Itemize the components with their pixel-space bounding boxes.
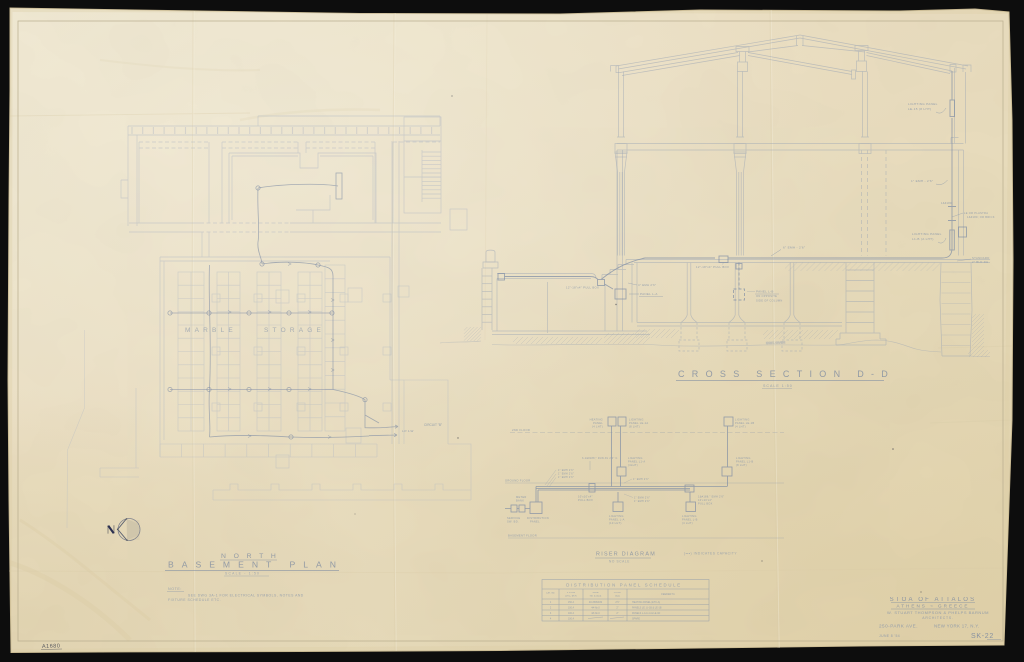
svg-text:RISER DIAGRAM: RISER DIAGRAM: [596, 552, 656, 558]
svg-text:PANEL LE-1A: PANEL LE-1A: [629, 421, 648, 425]
svg-text:2 POLE: 2 POLE: [567, 592, 576, 594]
svg-text:BANK: BANK: [516, 499, 524, 503]
svg-text:NOTE:: NOTE:: [168, 587, 182, 591]
svg-text:PULL BOX: PULL BOX: [578, 498, 593, 502]
svg-text:W. STUART THOMPSON & PHELPS BA: W. STUART THOMPSON & PHELPS BARNUM: [887, 610, 989, 615]
svg-text:SK-22: SK-22: [971, 633, 994, 640]
svg-text:PANEL L-A: PANEL L-A: [640, 292, 658, 296]
svg-text:2": 2": [616, 606, 618, 609]
svg-text:DISTRIBUTION PANEL SCHEDULE: DISTRIBUTION PANEL SCHEDULE: [566, 583, 682, 588]
svg-text:4#-No.0: 4#-No.0: [591, 606, 600, 609]
svg-text:LIGHTING: LIGHTING: [628, 456, 643, 460]
svg-text:L.P. 1-W: L.P. 1-W: [402, 429, 413, 433]
svg-text:JUNE 8 '54: JUNE 8 '54: [879, 634, 900, 638]
svg-text:SPARE: SPARE: [632, 617, 640, 620]
svg-text:2": 2": [616, 612, 618, 615]
svg-text:4#-No.0: 4#-No.0: [591, 612, 600, 615]
svg-text:100 A: 100 A: [568, 617, 575, 620]
svg-text:(10 LHT): (10 LHT): [609, 521, 622, 525]
svg-text:10'x10'x4": 10'x10'x4": [578, 495, 593, 499]
svg-text:EXIST. GRADE: EXIST. GRADE: [766, 340, 786, 345]
svg-text:PANEL: PANEL: [593, 421, 603, 425]
svg-text:(•••) INDICATES CAPACITY: (•••) INDICATES CAPACITY: [684, 552, 737, 556]
svg-text:LIGHTING: LIGHTING: [629, 418, 644, 422]
svg-text:BASEMENT FLOOR: BASEMENT FLOOR: [508, 534, 537, 538]
svg-text:PANEL L1-B: PANEL L1-B: [736, 460, 753, 464]
svg-text:100 A: 100 A: [568, 612, 575, 615]
svg-text:ARCHITECTS.: ARCHITECTS.: [922, 616, 953, 620]
svg-text:STORAGE: STORAGE: [264, 327, 325, 334]
svg-text:LIGHTING PANEL: LIGHTING PANEL: [908, 102, 938, 106]
svg-text:SCALE 1:50: SCALE 1:50: [763, 384, 793, 388]
svg-text:COND.: COND.: [614, 592, 622, 594]
svg-text:150 A: 150 A: [568, 601, 575, 604]
svg-text:2ND FLOOR: 2ND FLOOR: [512, 428, 530, 432]
svg-text:4" EMH 2'6": 4" EMH 2'6": [638, 283, 656, 287]
svg-text:(4LHT): (4LHT): [628, 463, 638, 467]
svg-text:SIZE: SIZE: [615, 596, 621, 598]
svg-text:No. & SIZE: No. & SIZE: [590, 596, 602, 598]
svg-text:PANEL L1-A: PANEL L1-A: [628, 460, 645, 464]
svg-text:SERVICE: SERVICE: [507, 516, 520, 520]
svg-text:LE-15 (8 LHT): LE-15 (8 LHT): [908, 107, 932, 111]
svg-text:PANEL L-A: PANEL L-A: [609, 518, 625, 522]
svg-text:4#-350MCM: 4#-350MCM: [589, 601, 602, 604]
svg-text:(8 LHT): (8 LHT): [736, 463, 747, 467]
svg-text:1&#189;: 1&#189;: [941, 201, 953, 205]
svg-text:(8 LHT): (8 LHT): [629, 425, 640, 429]
svg-text:1" EMH - 2'6": 1" EMH - 2'6": [911, 179, 933, 183]
svg-text:1" EMH 2'6": 1" EMH 2'6": [633, 478, 649, 481]
svg-text:LE OR PLASTRA: LE OR PLASTRA: [964, 211, 988, 215]
svg-text:CIR. No.: CIR. No.: [546, 593, 555, 595]
svg-text:PANELS LE. LI-1B & LE-1B: PANELS LE. LI-1B & LE-1B: [632, 606, 662, 609]
svg-text:ATHENS ~ GREECE: ATHENS ~ GREECE: [897, 604, 970, 609]
svg-text:LIGHTING: LIGHTING: [735, 418, 750, 422]
svg-text:LIGHTING: LIGHTING: [682, 514, 697, 518]
svg-text:(4 LHT): (4 LHT): [682, 521, 693, 525]
svg-text:CIRCUIT "B": CIRCUIT "B": [424, 423, 442, 427]
svg-text:12"-18"x4" PULL BOX: 12"-18"x4" PULL BOX: [566, 286, 599, 290]
svg-text:PANELS L-A.LI-A & LE-1D: PANELS L-A.LI-A & LE-1D: [632, 612, 661, 615]
svg-text:250-PARK AVE.: 250-PARK AVE.: [879, 624, 918, 629]
svg-text:WIRE: WIRE: [593, 592, 599, 594]
svg-text:MARBLE: MARBLE: [185, 327, 237, 334]
svg-text:12"-18"x4" PULL BOX: 12"-18"x4" PULL BOX: [696, 265, 729, 269]
svg-text:2½": 2½": [615, 600, 619, 604]
svg-text:CROSS SECTION D-D: CROSS SECTION D-D: [678, 369, 895, 379]
svg-text:STOA OF ATTALOS: STOA OF ATTALOS: [890, 597, 977, 603]
svg-text:CIRC. BKR.: CIRC. BKR.: [565, 596, 578, 598]
svg-text:1" EMH 2'6": 1" EMH 2'6": [558, 476, 574, 479]
svg-text:HEATING PANEL (ETC-A): HEATING PANEL (ETC-A): [632, 601, 660, 604]
svg-text:LIGHTING: LIGHTING: [609, 514, 624, 518]
svg-text:PULL BOX: PULL BOX: [698, 503, 713, 506]
svg-text:FEEDER To: FEEDER To: [661, 593, 675, 596]
svg-text:GROUND FLOOR: GROUND FLOOR: [505, 479, 531, 483]
svg-text:1&#189; OR BRICK: 1&#189; OR BRICK: [967, 215, 995, 219]
svg-text:PANEL: PANEL: [530, 520, 540, 524]
svg-text:DISTRIBUTION: DISTRIBUTION: [527, 516, 549, 520]
svg-text:L1-B (A LHT): L1-B (A LHT): [912, 237, 934, 241]
svg-text:HEATING: HEATING: [590, 418, 603, 422]
svg-text:6" EMH - 2'6": 6" EMH - 2'6": [783, 246, 805, 250]
svg-text:3-1&#188;" RUN AV 2'0" C.: 3-1&#188;" RUN AV 2'0" C.: [582, 457, 618, 460]
svg-text:FIXTURE SCHEDULE ETC.: FIXTURE SCHEDULE ETC.: [168, 598, 221, 602]
svg-text:PANEL L-B: PANEL L-B: [756, 290, 774, 294]
svg-text:LIGHTING: LIGHTING: [736, 456, 751, 460]
svg-text:NO SCALE: NO SCALE: [609, 560, 630, 564]
svg-text:ON OPPOSITE: ON OPPOSITE: [756, 294, 777, 298]
svg-text:PANEL L-B: PANEL L-B: [682, 518, 698, 522]
svg-text:SEE DWG 3A-1 FOR ELECTRICAL SY: SEE DWG 3A-1 FOR ELECTRICAL SYMBOLS, NOT…: [188, 594, 304, 598]
svg-text:(4 LHT): (4 LHT): [735, 425, 746, 429]
svg-text:SW. BD.: SW. BD.: [507, 520, 519, 524]
svg-text:(4 LHT): (4 LHT): [592, 425, 603, 429]
svg-text:NEW YORK 17, N.Y.: NEW YORK 17, N.Y.: [934, 624, 979, 629]
svg-text:1" EMH 2'6": 1" EMH 2'6": [634, 500, 650, 503]
svg-text:2" BLD-DH: 2" BLD-DH: [972, 260, 988, 264]
svg-text:PANEL LE-1B: PANEL LE-1B: [735, 421, 754, 425]
svg-text:100 A: 100 A: [568, 606, 575, 609]
svg-text:LIGHTING PANEL: LIGHTING PANEL: [912, 232, 942, 236]
svg-text:BASEMENT PLAN: BASEMENT PLAN: [168, 560, 344, 570]
svg-text:SCALE - 1:50: SCALE - 1:50: [225, 572, 260, 576]
svg-text:SIDE OF COLUMN: SIDE OF COLUMN: [756, 299, 783, 303]
svg-text:METER: METER: [516, 495, 527, 499]
